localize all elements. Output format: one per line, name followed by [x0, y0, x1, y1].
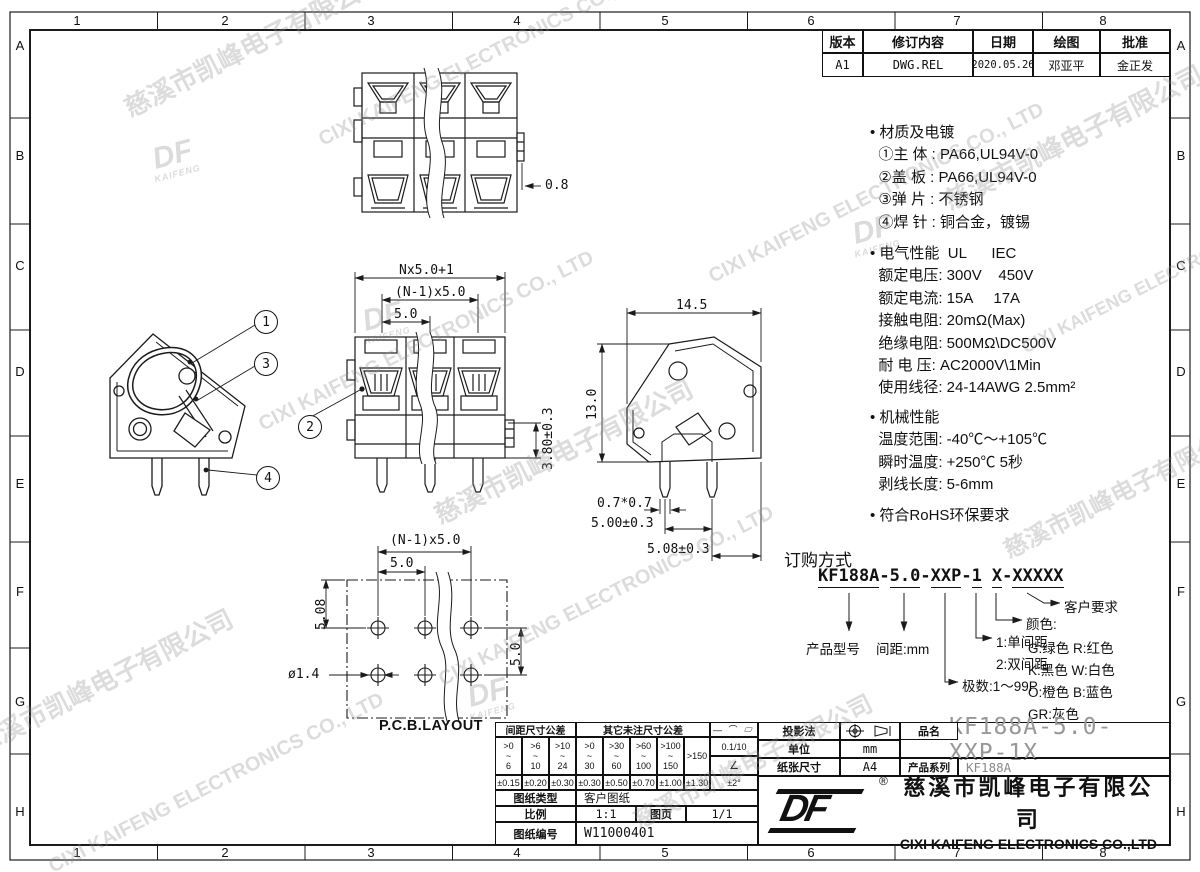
zone-col: 4 — [508, 845, 526, 860]
tol-value: ±0.50 — [603, 775, 630, 790]
drawing-number-label: 图纸编号 — [495, 822, 576, 845]
dim-side-width: 14.5 — [676, 298, 707, 313]
projection-symbol-icon — [840, 722, 900, 740]
drawing-type-label: 图纸类型 — [495, 790, 576, 806]
zone-col: 3 — [362, 13, 380, 28]
pn-pitch: 5.0 — [890, 566, 921, 588]
tol-value: ±0.20 — [522, 775, 549, 790]
revision-header: 日期 — [973, 30, 1033, 53]
pn-sep: - — [879, 566, 889, 586]
tol-range: >6 ~ 10 — [522, 737, 549, 775]
zone-row: A — [1172, 38, 1190, 53]
tol-value: ±0.70 — [630, 775, 657, 790]
balloon-4: 4 — [256, 466, 280, 490]
dim-pcb-span: (N-1)x5.0 — [390, 533, 460, 548]
registered-mark: ® — [879, 774, 888, 788]
balloon-1-number: 1 — [262, 315, 270, 330]
tol-value: ±1.00 — [657, 775, 684, 790]
zone-row: D — [1172, 364, 1190, 379]
spec-rohs: • 符合RoHS环保要求 — [870, 505, 1009, 527]
scale-value: 1:1 — [576, 806, 636, 822]
angle-tolerance: ±2° — [710, 775, 758, 790]
ordering-color-title: 颜色: — [1026, 613, 1057, 633]
balloon-leaders — [188, 325, 360, 475]
page-label: 图页 — [636, 806, 686, 822]
flatness-tolerance: 0.1/10 — [710, 737, 758, 756]
tol-range-over150: >150 — [684, 737, 710, 775]
revision-drawn-by: 邓亚平 — [1033, 53, 1100, 77]
tol-value: ±0.30 — [576, 775, 603, 790]
side-view — [627, 337, 761, 497]
pn-sep: - — [1002, 566, 1012, 586]
dim-front-span: (N-1)x5.0 — [395, 285, 465, 300]
ordering-color-row: O:橙色 B:蓝色 — [1028, 681, 1113, 701]
zone-row: C — [1172, 258, 1190, 273]
angle-icon: ∠ — [710, 756, 758, 775]
dim-front-total: Nx5.0+1 — [399, 263, 454, 278]
dim-top-thickness: 0.8 — [545, 178, 568, 193]
zone-row: H — [1172, 804, 1190, 819]
pn-custom: XXXXX — [1012, 566, 1063, 588]
dim-pcb-row-offset: 5.08 — [314, 599, 329, 630]
zone-row: B — [1172, 148, 1190, 163]
pn-color: X — [992, 566, 1002, 588]
balloon-2-number: 2 — [306, 420, 314, 435]
revision-header: 绘图 — [1033, 30, 1100, 53]
zone-row: F — [1172, 584, 1190, 599]
pcb-layout-label: P.C.B.LAYOUT — [379, 718, 483, 734]
pcb-layout — [347, 572, 507, 724]
front-view — [347, 332, 514, 492]
zone-col: 2 — [216, 13, 234, 28]
zone-row: G — [11, 694, 29, 709]
unit-label: 单位 — [758, 740, 840, 758]
unit-value: mm — [840, 740, 900, 758]
balloon-2: 2 — [298, 415, 322, 439]
revision-approved-by: 金正发 — [1100, 53, 1170, 77]
zone-row: C — [11, 258, 29, 273]
projection-symbol-glyph — [843, 723, 897, 739]
spec-materials: • 材质及电镀 ①主 体 : PA66,UL94V-0 ②盖 板 : PA66,… — [870, 122, 1038, 234]
dim-pin-face: 5.08±0.3 — [647, 542, 710, 557]
balloon-1: 1 — [254, 310, 278, 334]
tol-value: ±0.30 — [549, 775, 576, 790]
zone-col: 3 — [362, 845, 380, 860]
zone-col: 8 — [1094, 13, 1112, 28]
balloon-4-number: 4 — [264, 471, 272, 486]
drawing-type-value: 客户图纸 — [576, 790, 758, 806]
zone-col: 6 — [802, 13, 820, 28]
company-logo-text: DF — [776, 788, 830, 831]
revision-header: 修订内容 — [863, 30, 973, 53]
dim-front-depth: 3.80±0.3 — [541, 407, 556, 470]
ordering-pitch-label: 间距:mm — [876, 638, 929, 658]
geo-symbols-icon: — ⌒ ▱ — [710, 722, 758, 737]
zone-row: B — [11, 148, 29, 163]
revision-version: A1 — [822, 53, 863, 77]
ordering-poles-label: 极数:1～99P — [962, 675, 1038, 695]
pn-model: KF188A — [818, 566, 879, 588]
zone-col: 2 — [216, 845, 234, 860]
drawing-number-value: W11000401 — [576, 822, 758, 845]
top-view — [354, 68, 524, 218]
section-view — [110, 334, 245, 495]
ordering-color-row: K:黑色 W:白色 — [1028, 659, 1115, 679]
zone-row: E — [11, 476, 29, 491]
zone-col: 5 — [656, 845, 674, 860]
dim-pcb-row-pitch: 5.0 — [509, 643, 524, 666]
dim-pcb-pitch: 5.0 — [390, 556, 413, 571]
pcb-dims — [321, 546, 527, 675]
tol-range: >0 ~ 30 — [576, 737, 603, 775]
pn-sep: - — [961, 566, 971, 586]
revision-date: 2020.05.26 — [973, 53, 1033, 77]
tol-range: >100 ~ 150 — [657, 737, 684, 775]
zone-row: A — [11, 38, 29, 53]
spec-electrical: • 电气性能 UL IEC 额定电压: 300V 450V 额定电流: 15A … — [870, 243, 1075, 400]
revision-header: 版本 — [822, 30, 863, 53]
zone-col: 4 — [508, 13, 526, 28]
pn-poles: XXP — [931, 566, 962, 588]
projection-label: 投影法 — [758, 722, 840, 740]
tol-value: ±0.15 — [495, 775, 522, 790]
tol-range: >30 ~ 60 — [603, 737, 630, 775]
balloon-3: 3 — [254, 352, 278, 376]
zone-col: 1 — [68, 13, 86, 28]
dim-pin-size: 0.7*0.7 — [597, 496, 652, 511]
tol-value: ±1.30 — [684, 775, 710, 790]
zone-row: G — [1172, 694, 1190, 709]
drawing-sheet: 1 2 3 4 5 6 7 8 1 2 3 4 5 6 7 8 A B C D … — [0, 0, 1200, 872]
company-name-cn: 慈溪市凯峰电子有限公司 — [892, 770, 1165, 834]
zone-row: E — [1172, 476, 1190, 491]
revision-header: 批准 — [1100, 30, 1170, 53]
dim-pin-pitch: 5.00±0.3 — [591, 516, 654, 531]
tol-range: >0 ~ 6 — [495, 737, 522, 775]
dim-side-height: 13.0 — [585, 389, 600, 420]
zone-row: D — [11, 364, 29, 379]
company-logo: DF — [763, 786, 875, 836]
zone-row: H — [11, 804, 29, 819]
page-value: 1/1 — [686, 806, 758, 822]
dim-front-pitch: 5.0 — [394, 307, 417, 322]
tol-other-header: 其它未注尺寸公差 — [576, 722, 710, 737]
pn-sep: - — [920, 566, 930, 586]
ordering-product-model-label: 产品型号 — [806, 638, 860, 658]
tol-range: >10 ~ 24 — [549, 737, 576, 775]
company-banner: DF ® 慈溪市凯峰电子有限公司 CIXI KAIFENG ELECTRONIC… — [758, 776, 1170, 845]
ordering-part-number: KF188A-5.0-XXP-1X-XXXXX — [818, 566, 1064, 588]
zone-col: 5 — [656, 13, 674, 28]
revision-content: DWG.REL — [863, 53, 973, 77]
tol-range: >60 ~ 100 — [630, 737, 657, 775]
pn-spacing-type: 1 — [972, 566, 982, 588]
tol-pitch-header: 间距尺寸公差 — [495, 722, 576, 737]
spec-mechanical: • 机械性能 温度范围: -40℃～+105℃ 瞬时温度: +250℃ 5秒 剥… — [870, 407, 1047, 497]
company-name-en: CIXI KAIFENG ELECTRONICS CO.,LTD — [892, 836, 1165, 852]
dim-pcb-hole: ø1.4 — [288, 667, 319, 682]
product-name-label: 品名 — [900, 722, 958, 740]
scale-label: 比例 — [495, 806, 576, 822]
balloon-3-number: 3 — [262, 357, 270, 372]
zone-col: 7 — [948, 13, 966, 28]
top-view-dims — [522, 163, 541, 190]
ordering-color-row: G:绿色 R:红色 — [1028, 637, 1114, 657]
zone-col: 1 — [68, 845, 86, 860]
zone-row: F — [11, 584, 29, 599]
ordering-customer-label: 客户要求 — [1064, 596, 1118, 616]
